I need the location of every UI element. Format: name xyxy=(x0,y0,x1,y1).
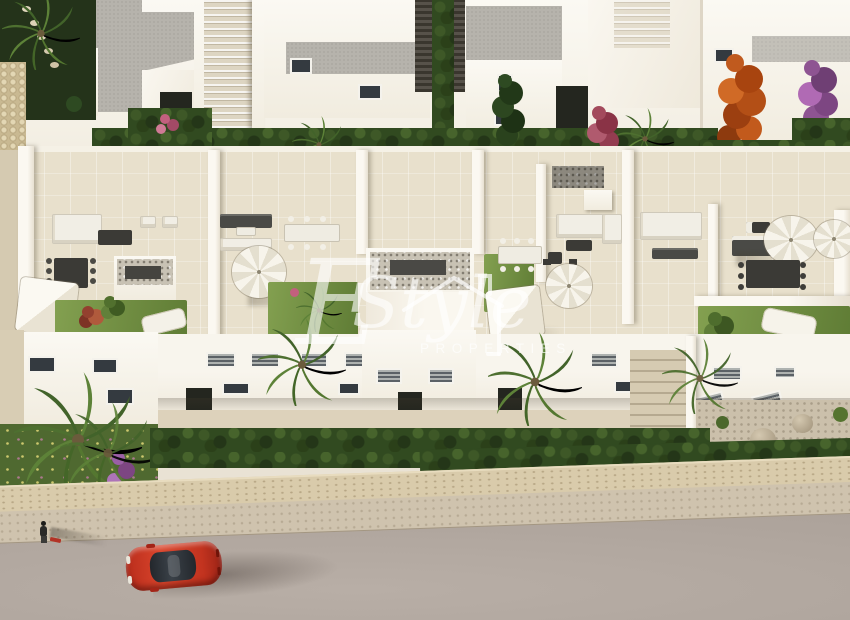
stone-ball xyxy=(792,414,813,433)
dining-table xyxy=(284,224,340,242)
dining-chairs xyxy=(500,238,506,244)
house-wall xyxy=(466,60,562,136)
window xyxy=(290,58,312,74)
terrace-divider-wall xyxy=(356,150,368,254)
terrace-divider-wall xyxy=(208,150,220,348)
coffee-table xyxy=(566,240,592,251)
sofa xyxy=(52,214,102,244)
dining-table xyxy=(746,260,800,288)
aerial-render-scene: E Style PROPERTIES xyxy=(0,0,850,620)
pedestrian-legs xyxy=(41,536,47,543)
car-headlight xyxy=(126,556,131,564)
pebble-roof xyxy=(552,166,604,188)
dining-chairs xyxy=(46,258,52,264)
terrace-top-edge xyxy=(18,146,850,152)
pink-tree xyxy=(592,106,606,120)
armchair xyxy=(162,216,178,228)
stair-wall xyxy=(252,0,264,142)
orange-tree xyxy=(726,54,744,72)
terrace-divider-wall xyxy=(622,150,634,324)
round-parasol xyxy=(814,220,850,258)
palm-tree xyxy=(488,332,582,426)
palm-tree xyxy=(258,318,346,406)
armchair xyxy=(140,216,156,228)
bougainvillea xyxy=(804,60,820,76)
window xyxy=(428,368,454,384)
roof xyxy=(466,6,562,62)
terrace-parapet-front xyxy=(694,296,850,306)
terrace-divider-wall xyxy=(472,150,484,254)
rooflight-box xyxy=(390,260,446,275)
terrace-divider-wall xyxy=(708,204,718,300)
coffee-table xyxy=(236,227,256,236)
window xyxy=(206,352,236,368)
roof xyxy=(752,36,850,62)
pedestrian xyxy=(38,521,50,543)
pink-flowers xyxy=(160,114,170,124)
car-headlight xyxy=(128,576,133,584)
window xyxy=(774,366,796,379)
window xyxy=(376,368,402,384)
terrace-divider-wall xyxy=(536,164,546,282)
red-car xyxy=(124,540,224,593)
external-staircase xyxy=(614,0,670,48)
window xyxy=(28,356,56,373)
window xyxy=(590,352,618,368)
window xyxy=(494,112,506,126)
sofa xyxy=(640,212,702,240)
car-taillight xyxy=(217,567,221,575)
coffee-table xyxy=(98,230,132,245)
sofa xyxy=(220,214,272,228)
car-taillight xyxy=(216,549,220,557)
pink-flower-pot xyxy=(290,288,299,297)
window xyxy=(222,382,250,395)
conifer-tree xyxy=(498,74,512,88)
shrub xyxy=(716,416,729,429)
conifer-tree xyxy=(66,96,82,112)
sofa xyxy=(602,214,622,244)
round-parasol xyxy=(546,264,592,308)
car-roof-highlight xyxy=(167,555,181,578)
dining-table xyxy=(498,246,542,264)
hedge-column xyxy=(432,0,454,128)
palm-tree xyxy=(2,0,80,70)
red-shrub xyxy=(82,306,94,318)
potted-tree xyxy=(708,312,722,326)
bistro-set xyxy=(548,252,562,264)
storage-box xyxy=(584,190,612,210)
dining-chairs xyxy=(288,216,294,222)
rooflight-box xyxy=(125,266,161,279)
palm-tree xyxy=(662,338,738,414)
dining-chairs xyxy=(738,262,744,268)
window xyxy=(358,84,382,100)
cantilever-parasol xyxy=(764,216,818,264)
bench xyxy=(652,248,698,259)
